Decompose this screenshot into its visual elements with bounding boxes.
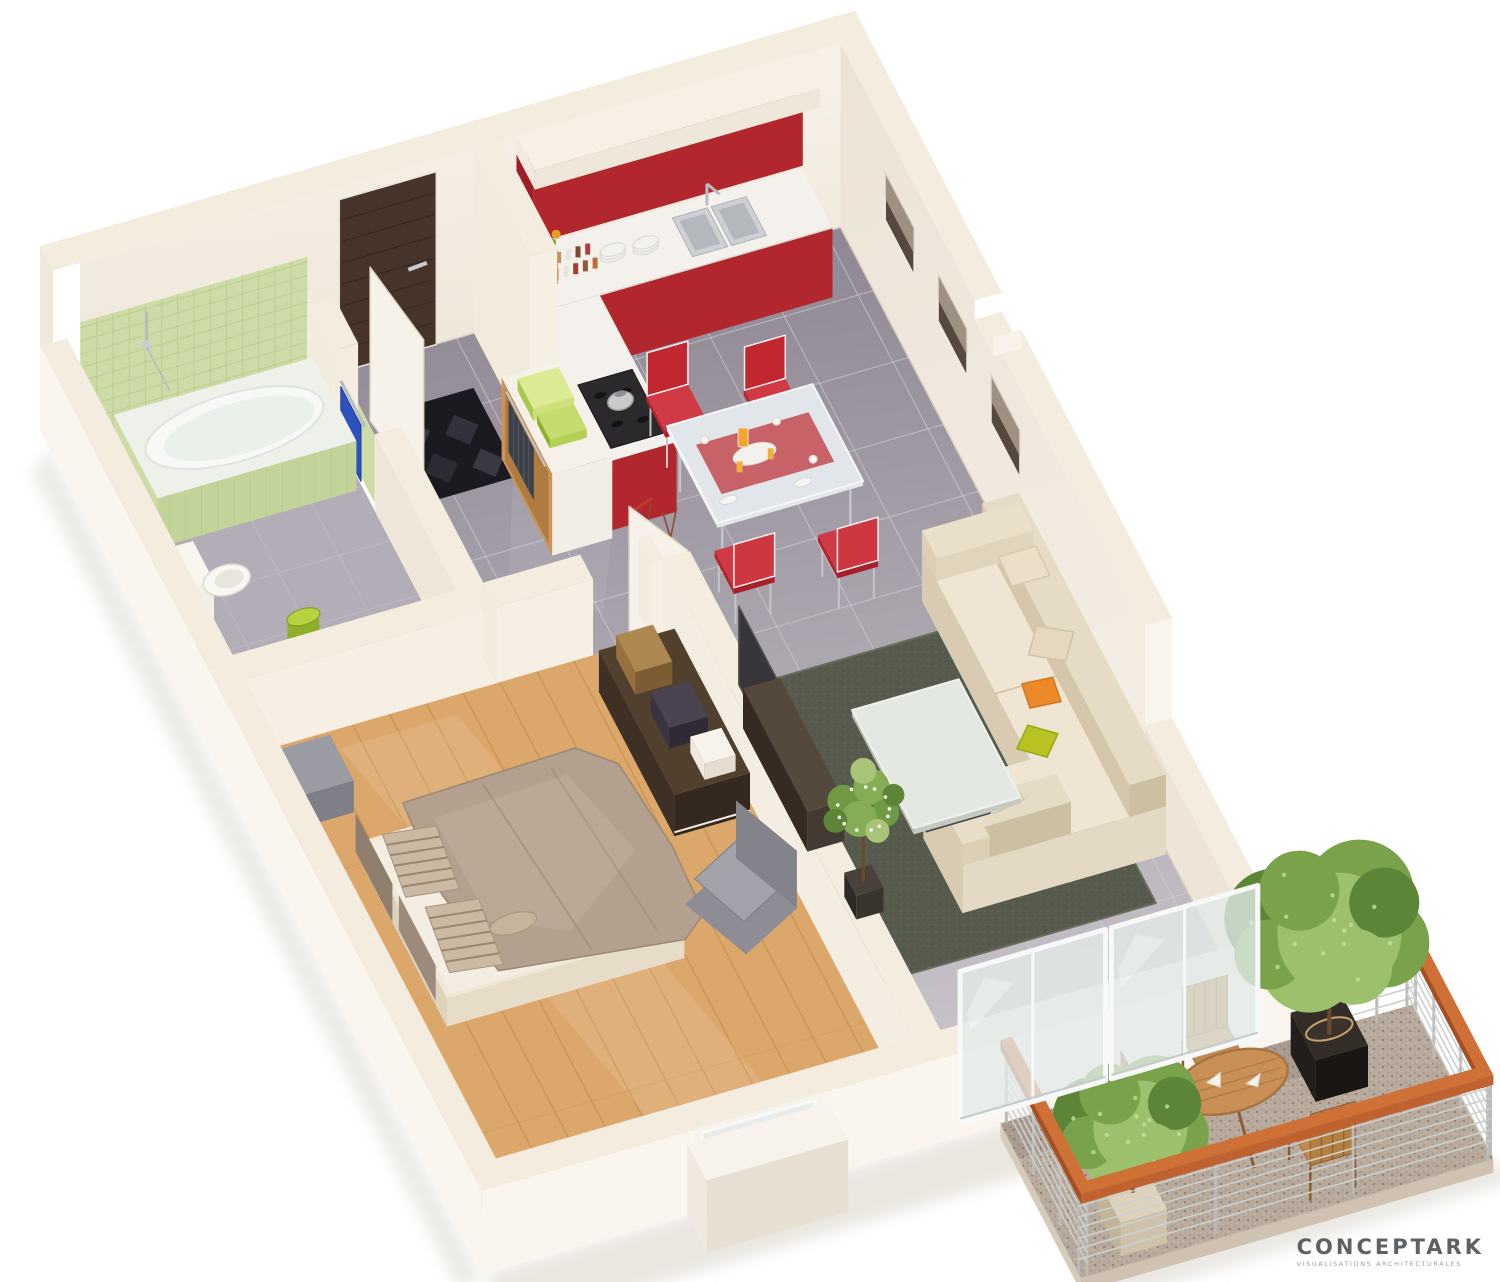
sofa-pillow [1029,626,1074,661]
floorplan-3d-render [0,0,1500,1282]
page: CONCEPTARK VISUALISATIONS ARCHITECTURALE… [0,0,1500,1282]
conceptark-logo: CONCEPTARK VISUALISATIONS ARCHITECTURALE… [1297,1235,1484,1268]
logo-tagline: VISUALISATIONS ARCHITECTURALES [1297,1260,1484,1268]
logo-wordmark: CONCEPTARK [1297,1235,1484,1259]
